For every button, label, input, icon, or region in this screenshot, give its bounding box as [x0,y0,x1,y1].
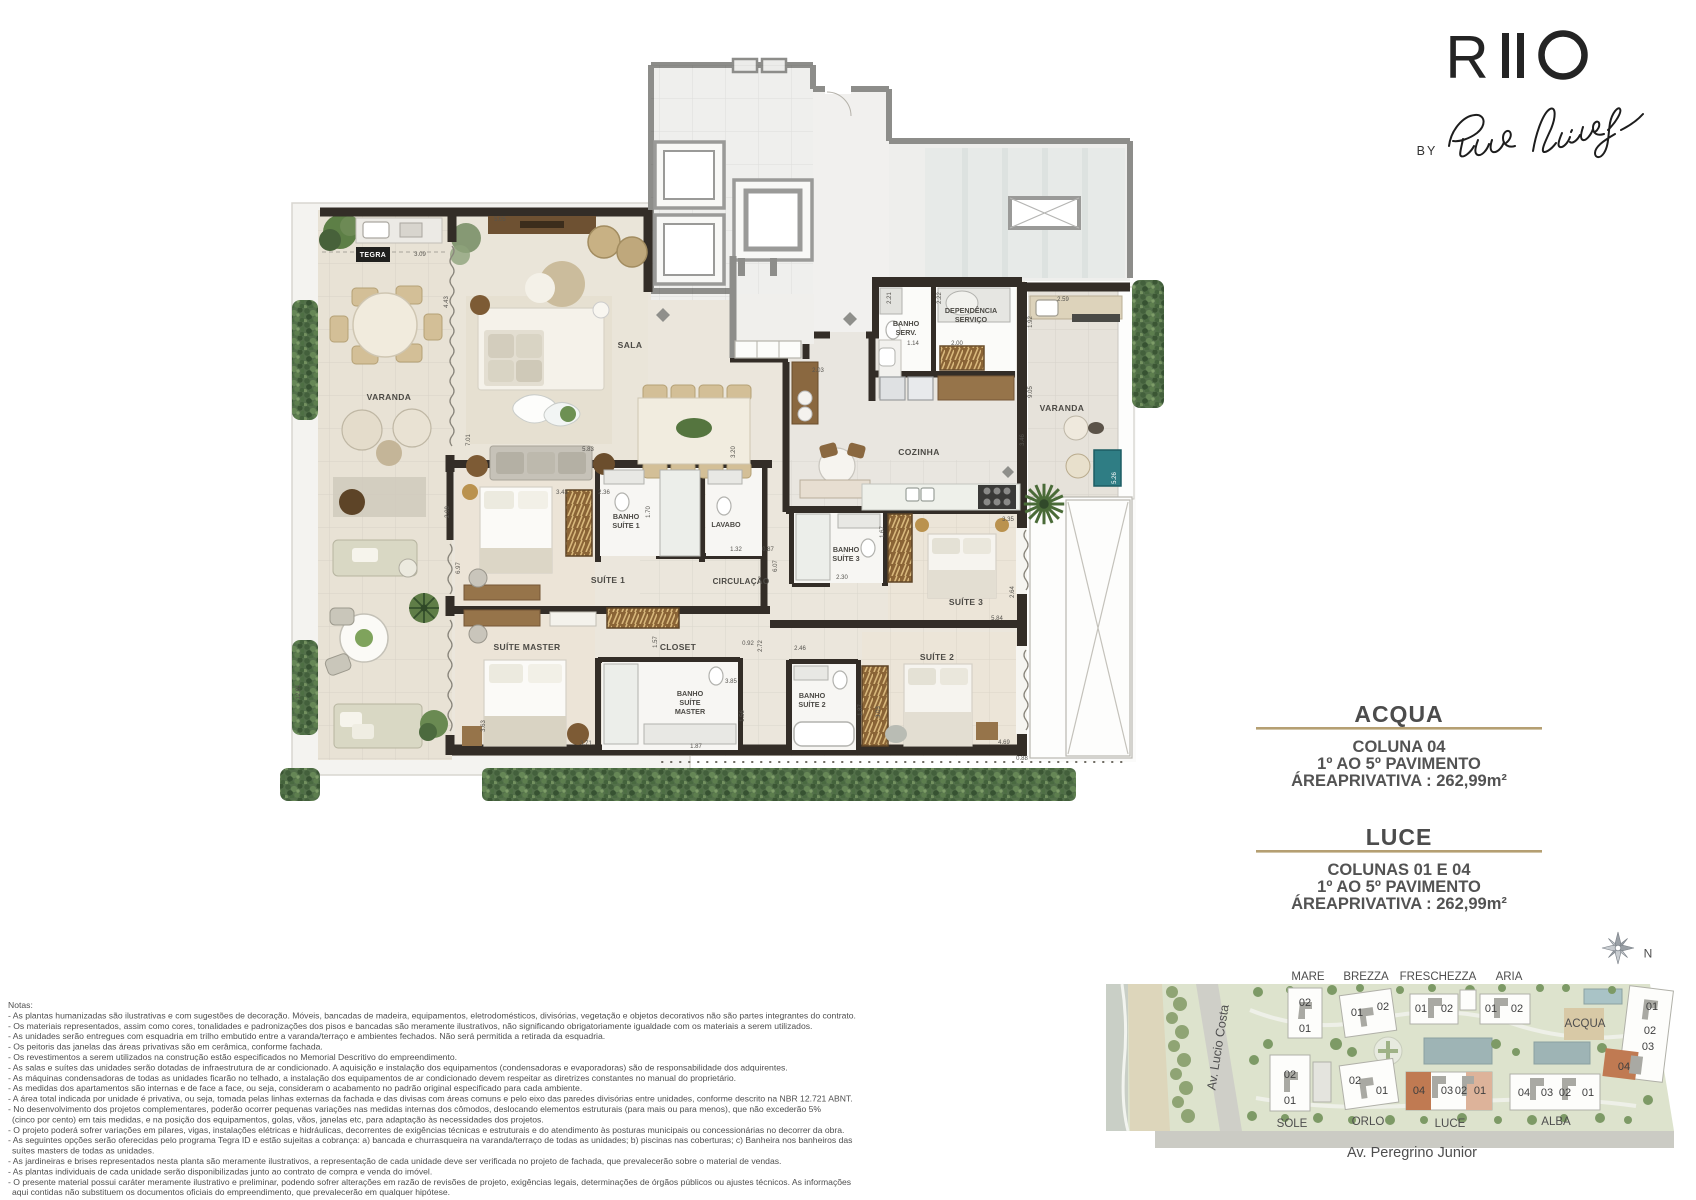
svg-text:SUÍTE 2: SUÍTE 2 [920,652,954,662]
svg-text:- As seguintes opções serão of: - As seguintes opções serão oferecidas p… [8,1135,852,1145]
svg-text:COZINHA: COZINHA [898,447,940,457]
svg-text:1.32: 1.32 [730,547,742,553]
svg-text:SERV.: SERV. [896,328,917,337]
svg-text:MARE: MARE [1291,971,1325,983]
svg-text:aqui contidas não substituem o: aqui contidas não substituem os document… [12,1187,450,1197]
svg-text:1.14: 1.14 [907,341,919,347]
svg-text:3.46: 3.46 [1020,434,1026,446]
svg-text:03: 03 [1441,1085,1453,1097]
svg-text:MASTER: MASTER [675,707,706,716]
svg-text:2.08: 2.08 [445,506,451,518]
svg-text:5.05: 5.05 [494,217,506,223]
svg-text:4.43: 4.43 [444,296,450,308]
svg-text:SUÍTE 1: SUÍTE 1 [591,575,625,585]
svg-text:SALA: SALA [618,340,643,350]
svg-text:2.22: 2.22 [937,292,943,304]
svg-text:5.84: 5.84 [991,616,1003,622]
svg-text:2.64: 2.64 [1010,586,1016,598]
svg-text:01: 01 [1415,1003,1427,1015]
svg-text:02: 02 [1284,1069,1296,1081]
svg-text:SOLE: SOLE [1277,1118,1308,1130]
svg-text:1.92: 1.92 [1028,316,1034,328]
svg-text:- Os materiais representados,: - Os materiais representados, assim como… [8,1021,812,1031]
svg-text:SERVIÇO: SERVIÇO [955,315,988,324]
svg-text:LUCE: LUCE [1366,824,1433,850]
svg-text:6.07: 6.07 [773,560,779,572]
svg-text:5.26: 5.26 [1112,472,1118,484]
svg-text:3.03: 3.03 [876,706,882,718]
svg-text:ACQUA: ACQUA [1354,701,1443,727]
svg-text:ARIA: ARIA [1496,971,1523,983]
svg-text:04: 04 [1618,1061,1630,1073]
svg-text:Notas:: Notas: [8,1000,33,1010]
svg-text:- As medidas dos apartamentos: - As medidas dos apartamentos são intern… [8,1083,582,1093]
svg-text:(cinco por cento) em tais medi: (cinco por cento) em tais medidas, e na … [12,1114,544,1124]
svg-text:2.72: 2.72 [758,640,764,652]
svg-text:01: 01 [1299,1023,1311,1035]
svg-text:3.09: 3.09 [414,252,426,258]
svg-text:2.30: 2.30 [836,575,848,581]
svg-text:3.85: 3.85 [725,679,737,685]
svg-text:SUÍTE 3: SUÍTE 3 [832,554,859,563]
svg-text:- A área total indicada por un: - A área total indicada por unidade é pr… [8,1094,853,1104]
svg-text:01: 01 [1284,1095,1296,1107]
svg-text:03: 03 [1642,1041,1654,1053]
svg-text:SUÍTE 1: SUÍTE 1 [612,521,639,530]
svg-text:02: 02 [1377,1001,1389,1013]
svg-text:- No desenvolvimento dos proje: - No desenvolvimento dos projetos comple… [8,1104,821,1114]
svg-text:3.71: 3.71 [580,741,592,747]
svg-text:3.63: 3.63 [481,720,487,732]
svg-text:0.87: 0.87 [762,547,774,553]
svg-text:LUCE: LUCE [1435,1118,1466,1130]
svg-text:1.67: 1.67 [880,526,886,538]
svg-text:2.21: 2.21 [887,292,893,304]
svg-text:ACQUA: ACQUA [1565,1018,1606,1030]
svg-text:FRESCHEZZA: FRESCHEZZA [1400,971,1477,983]
svg-text:02: 02 [1441,1003,1453,1015]
svg-text:02: 02 [1299,997,1311,1009]
svg-text:0.88: 0.88 [1016,756,1028,762]
svg-text:3.35: 3.35 [1002,517,1014,523]
svg-text:R: R [1445,24,1488,91]
svg-text:03: 03 [1541,1087,1553,1099]
svg-text:- Os peitoris das janelas das: - Os peitoris das janelas das áreas priv… [8,1042,323,1052]
svg-text:01: 01 [1582,1087,1594,1099]
svg-text:SUÍTE 2: SUÍTE 2 [798,700,825,709]
svg-text:- Os revestimentos a serem uti: - Os revestimentos a serem utilizados na… [8,1052,457,1062]
svg-text:7.01: 7.01 [466,434,472,446]
svg-text:2.36: 2.36 [598,490,610,496]
svg-text:01: 01 [1474,1085,1486,1097]
svg-text:BANHO: BANHO [613,512,640,521]
svg-text:COLUNA 04: COLUNA 04 [1353,738,1447,756]
svg-text:1.87: 1.87 [858,704,864,716]
svg-text:3.43: 3.43 [556,490,568,496]
svg-text:ALBA: ALBA [1541,1116,1571,1128]
svg-text:BREZZA: BREZZA [1343,971,1389,983]
svg-text:N: N [1644,947,1653,961]
svg-text:12.81: 12.81 [296,684,302,700]
svg-text:1.57: 1.57 [653,636,659,648]
svg-text:CIRCULAÇÃO: CIRCULAÇÃO [713,577,770,586]
svg-text:ORLO: ORLO [1352,1116,1385,1128]
svg-text:- As máquinas condensadoras de: - As máquinas condensadoras de todas as … [8,1073,736,1083]
svg-text:BANHO: BANHO [799,691,826,700]
svg-text:ÁREAPRIVATIVA : 262,99m²: ÁREAPRIVATIVA : 262,99m² [1291,894,1507,913]
svg-text:01: 01 [1351,1007,1363,1019]
svg-text:- As plantas individuais de ca: - As plantas individuais de cada unidade… [8,1166,432,1176]
svg-text:DEPENDÊNCIA: DEPENDÊNCIA [945,306,997,315]
svg-text:- O projeto poderá sofrer vari: - O projeto poderá sofrer variações em p… [8,1125,844,1135]
svg-text:ÁREAPRIVATIVA : 262,99m²: ÁREAPRIVATIVA : 262,99m² [1291,771,1507,790]
svg-text:1.56: 1.56 [740,710,746,722]
svg-text:- As plantas humanizadas são i: - As plantas humanizadas são ilustrativa… [8,1010,856,1020]
svg-text:1º AO 5º PAVIMENTO: 1º AO 5º PAVIMENTO [1317,878,1481,896]
svg-text:2.46: 2.46 [794,646,806,652]
svg-text:4.69: 4.69 [998,740,1010,746]
svg-text:02: 02 [1455,1085,1467,1097]
svg-text:VARANDA: VARANDA [367,392,412,402]
svg-text:CLOSET: CLOSET [660,642,697,652]
svg-text:VARANDA: VARANDA [1040,403,1085,413]
svg-text:LAVABO: LAVABO [711,520,741,529]
svg-text:01: 01 [1376,1085,1388,1097]
svg-text:2.59: 2.59 [1057,297,1069,303]
svg-text:SUÍTE: SUÍTE [679,698,700,707]
svg-text:SUÍTE MASTER: SUÍTE MASTER [494,642,561,652]
svg-text:- As salas e suítes das unidad: - As salas e suítes das unidades serão d… [8,1062,788,1072]
svg-text:1.87: 1.87 [690,744,702,750]
svg-text:TEGRA: TEGRA [360,252,387,259]
svg-text:SUÍTE 3: SUÍTE 3 [949,597,983,607]
svg-text:suítes masters de todas as uni: suítes masters de todas as unidades. [12,1146,154,1156]
svg-text:02: 02 [1511,1003,1523,1015]
svg-text:01: 01 [1646,1001,1658,1013]
svg-text:02: 02 [1349,1075,1361,1087]
svg-text:1º AO 5º PAVIMENTO: 1º AO 5º PAVIMENTO [1317,755,1481,773]
svg-text:04: 04 [1413,1085,1425,1097]
svg-text:COLUNAS 01 E 04: COLUNAS 01 E 04 [1327,861,1471,879]
svg-text:- As jardineiras e brises repr: - As jardineiras e brises representados … [8,1156,781,1166]
svg-text:BY: BY [1417,144,1438,158]
svg-text:- O presente material possui c: - O presente material possui caráter mer… [8,1177,851,1187]
svg-text:BANHO: BANHO [677,689,704,698]
svg-text:01: 01 [1485,1003,1497,1015]
svg-text:3.20: 3.20 [731,446,737,458]
svg-text:BANHO: BANHO [833,545,860,554]
svg-text:5.83: 5.83 [582,447,594,453]
svg-text:1.70: 1.70 [646,506,652,518]
svg-text:BANHO: BANHO [893,319,920,328]
svg-text:9.05: 9.05 [1028,386,1034,398]
svg-text:04: 04 [1518,1087,1530,1099]
svg-text:6.97: 6.97 [456,562,462,574]
svg-text:- As unidades serão entregues: - As unidades serão entregues com esquad… [8,1031,605,1041]
svg-text:02: 02 [1644,1025,1656,1037]
svg-text:02: 02 [1559,1087,1571,1099]
svg-text:2.03: 2.03 [812,368,824,374]
svg-text:0.92: 0.92 [742,641,754,647]
svg-text:Av. Peregrino Junior: Av. Peregrino Junior [1347,1145,1477,1161]
svg-text:2.00: 2.00 [951,341,963,347]
